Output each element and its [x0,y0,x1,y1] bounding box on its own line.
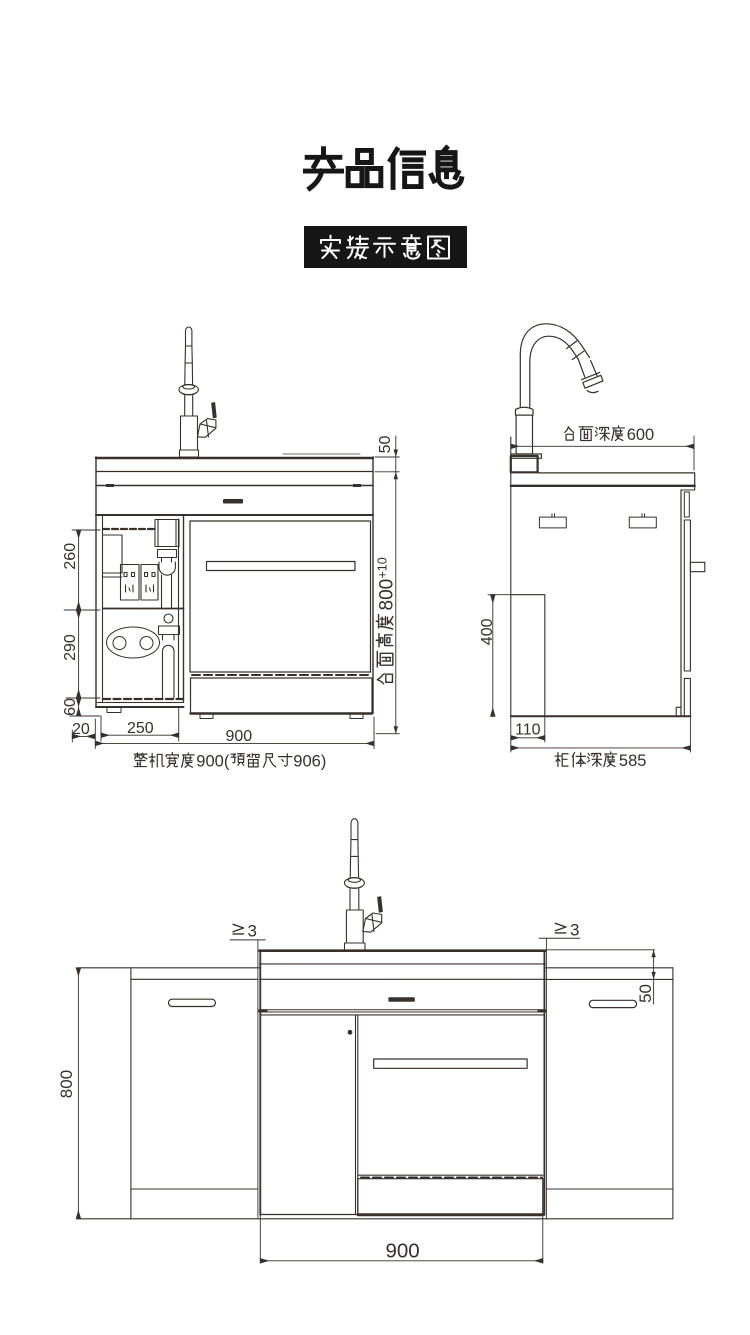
svg-text:3: 3 [570,921,579,940]
svg-text:260: 260 [62,543,79,570]
svg-text:250: 250 [127,720,154,737]
svg-text:400: 400 [479,618,496,645]
svg-text:50: 50 [636,984,655,1003]
svg-text:60: 60 [62,698,79,716]
svg-text:290: 290 [62,634,79,661]
svg-text:800: 800 [57,1070,76,1098]
svg-text:900(: 900( [196,753,230,771]
svg-text:900: 900 [386,1240,420,1263]
svg-text:585: 585 [619,752,647,770]
svg-text:600: 600 [627,426,655,444]
svg-text:906): 906) [293,753,326,771]
svg-text:20: 20 [72,721,90,738]
svg-text:3: 3 [248,922,257,941]
svg-text:+10: +10 [375,557,389,578]
svg-text:800: 800 [376,579,397,611]
svg-text:900: 900 [226,728,253,745]
svg-text:50: 50 [377,436,394,454]
svg-text:110: 110 [515,722,541,739]
